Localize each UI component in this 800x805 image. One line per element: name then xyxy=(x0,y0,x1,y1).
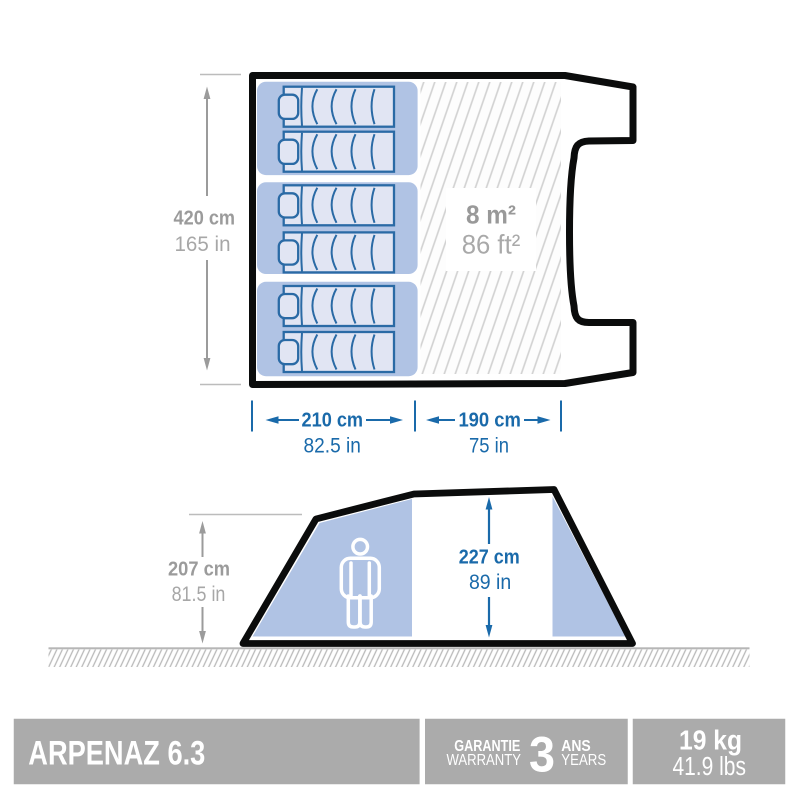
svg-text:75 in: 75 in xyxy=(469,435,509,458)
svg-text:81.5 in: 81.5 in xyxy=(172,583,226,606)
svg-text:190 cm: 190 cm xyxy=(458,410,521,432)
svg-text:82.5 in: 82.5 in xyxy=(304,435,361,458)
svg-text:165 in: 165 in xyxy=(175,233,231,256)
svg-text:WARRANTY: WARRANTY xyxy=(447,752,522,769)
svg-text:3: 3 xyxy=(529,726,555,782)
svg-text:420 cm: 420 cm xyxy=(174,208,236,230)
svg-text:41.9 lbs: 41.9 lbs xyxy=(672,753,746,781)
svg-text:86 ft²: 86 ft² xyxy=(462,230,521,260)
svg-text:8 m²: 8 m² xyxy=(466,199,516,229)
svg-text:YEARS: YEARS xyxy=(561,752,606,769)
svg-text:227 cm: 227 cm xyxy=(459,547,520,569)
svg-text:19 kg: 19 kg xyxy=(679,725,742,756)
svg-text:210 cm: 210 cm xyxy=(302,410,364,432)
svg-text:207 cm: 207 cm xyxy=(168,559,230,581)
svg-text:ARPENAZ 6.3: ARPENAZ 6.3 xyxy=(28,735,205,773)
svg-text:89 in: 89 in xyxy=(469,571,511,594)
